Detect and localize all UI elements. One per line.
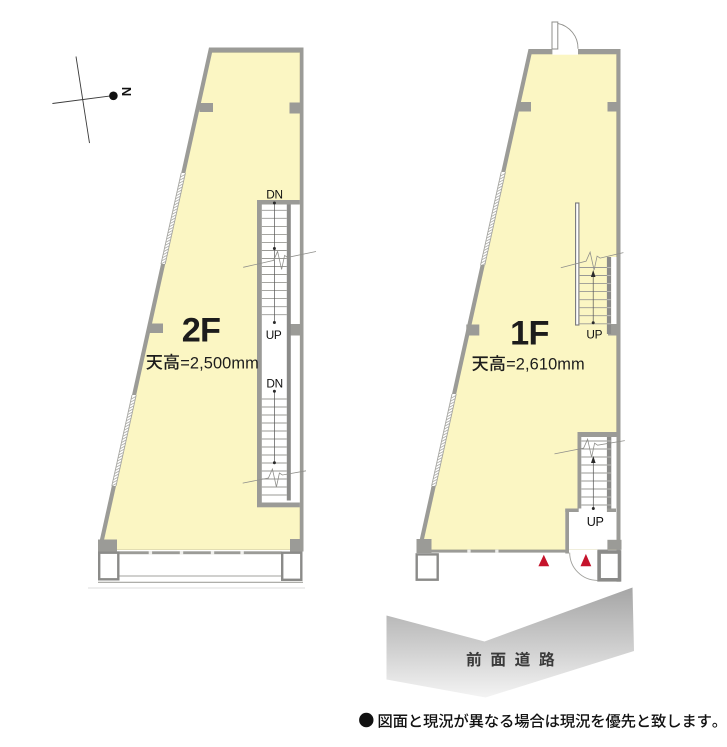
svg-text:N: N xyxy=(119,87,134,96)
svg-text:=2,610mm: =2,610mm xyxy=(506,356,585,374)
svg-text:UP: UP xyxy=(586,328,602,342)
svg-text:UP: UP xyxy=(587,515,604,529)
svg-text:2F: 2F xyxy=(182,312,220,350)
svg-text:UP: UP xyxy=(266,328,282,342)
svg-text:=2,500mm: =2,500mm xyxy=(180,354,259,372)
svg-text:DN: DN xyxy=(266,187,282,201)
svg-text:DN: DN xyxy=(266,377,282,391)
svg-text:1F: 1F xyxy=(510,315,548,353)
